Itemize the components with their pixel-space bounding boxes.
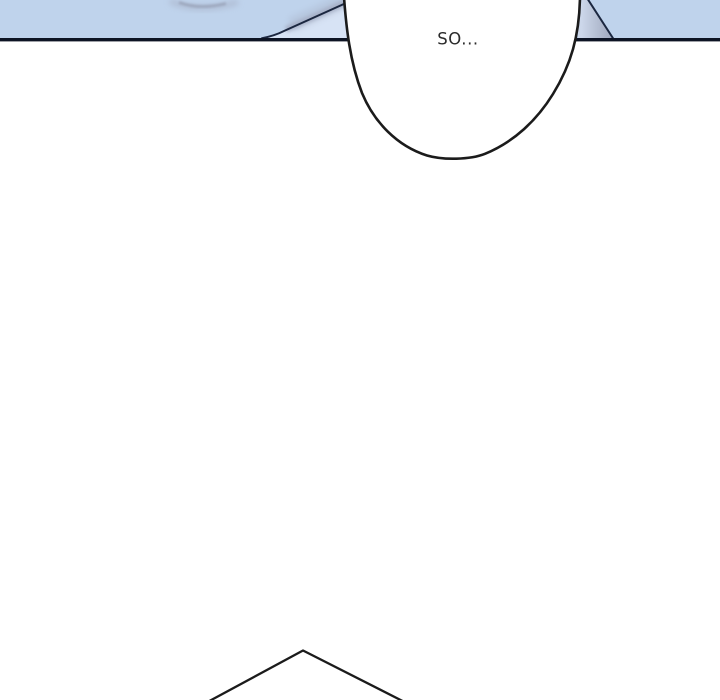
- panel-art: [0, 0, 720, 700]
- comic-panel: SO...: [0, 0, 720, 700]
- speech-bubble: [344, 0, 581, 159]
- bottom-bubble-outline: [209, 651, 404, 700]
- dialogue-text: SO...: [437, 30, 479, 49]
